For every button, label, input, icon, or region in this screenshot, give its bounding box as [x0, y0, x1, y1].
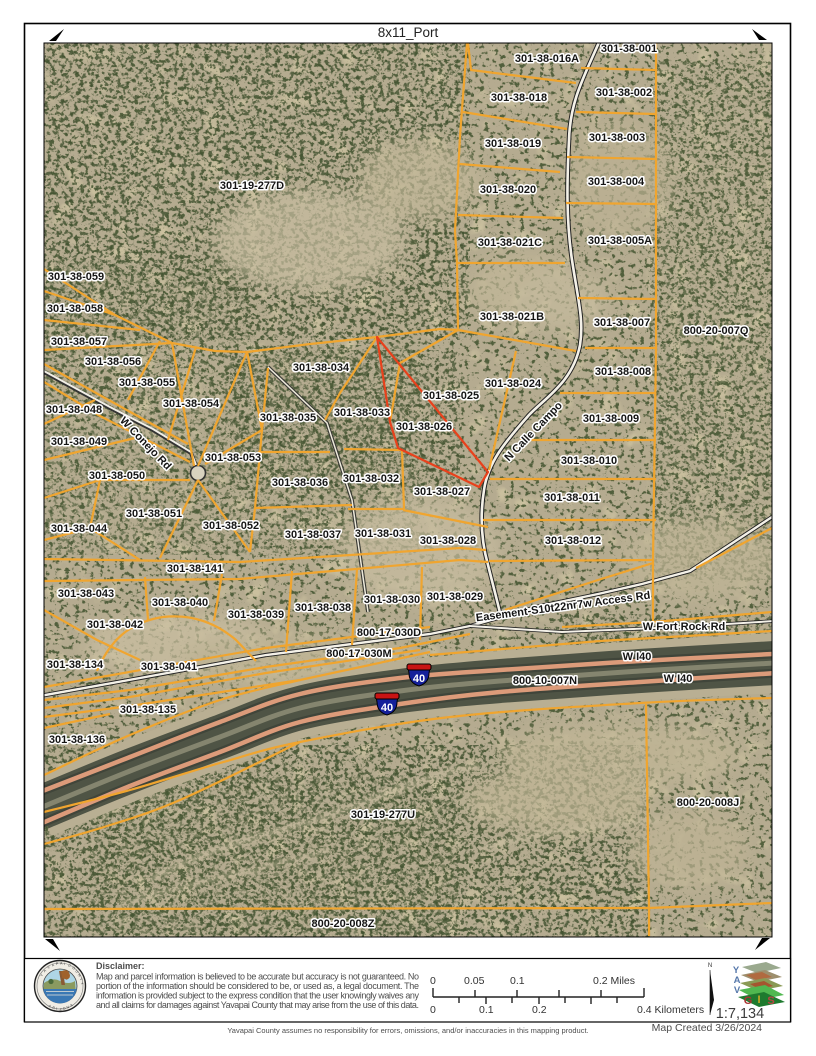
svg-text:301-19-277U: 301-19-277U [351, 809, 415, 821]
svg-text:301-38-007: 301-38-007 [594, 317, 650, 329]
svg-text:0.2: 0.2 [532, 1004, 547, 1016]
svg-text:800-20-008Z: 800-20-008Z [312, 918, 375, 930]
svg-text:0.2 Miles: 0.2 Miles [593, 975, 635, 987]
svg-text:301-38-008: 301-38-008 [595, 366, 651, 378]
svg-text:301-38-052: 301-38-052 [203, 520, 259, 532]
svg-text:W I40: W I40 [623, 651, 652, 663]
svg-text:301-38-032: 301-38-032 [343, 473, 399, 485]
svg-text:N: N [708, 963, 712, 969]
svg-text:V: V [734, 985, 741, 996]
svg-text:301-38-035: 301-38-035 [260, 412, 316, 424]
svg-text:301-38-058: 301-38-058 [47, 303, 103, 315]
svg-text:301-38-041: 301-38-041 [141, 661, 197, 673]
svg-text:information is provided subjec: information is provided subject to the e… [96, 991, 420, 1001]
svg-text:301-38-136: 301-38-136 [49, 734, 105, 746]
svg-text:301-38-049: 301-38-049 [51, 436, 107, 448]
svg-text:8x11_Port: 8x11_Port [378, 25, 439, 40]
svg-text:301-38-055: 301-38-055 [119, 377, 175, 389]
svg-text:Disclaimer:: Disclaimer: [96, 961, 145, 971]
svg-text:301-38-004: 301-38-004 [588, 176, 645, 188]
svg-text:301-38-018: 301-38-018 [491, 92, 547, 104]
svg-text:800-17-030D: 800-17-030D [357, 627, 421, 639]
svg-text:301-38-027: 301-38-027 [414, 486, 470, 498]
svg-text:301-38-056: 301-38-056 [85, 356, 141, 368]
svg-text:301-38-141: 301-38-141 [167, 563, 223, 575]
svg-text:301-38-012: 301-38-012 [545, 535, 601, 547]
svg-text:301-38-030: 301-38-030 [364, 594, 420, 606]
svg-text:Map and parcel information is: Map and parcel information is believed t… [96, 972, 419, 982]
svg-text:800-20-007Q: 800-20-007Q [684, 325, 749, 337]
svg-text:800-10-007N: 800-10-007N [513, 675, 577, 687]
svg-text:Yavapai County assumes no resp: Yavapai County assumes no responsibility… [227, 1026, 588, 1035]
svg-text:301-38-010: 301-38-010 [561, 455, 617, 467]
svg-text:301-38-057: 301-38-057 [51, 336, 107, 348]
svg-text:800-17-030M: 800-17-030M [326, 648, 391, 660]
svg-text:301-38-134: 301-38-134 [47, 659, 104, 671]
svg-text:0: 0 [430, 975, 436, 987]
svg-text:301-38-029: 301-38-029 [427, 591, 483, 603]
svg-text:301-38-005A: 301-38-005A [588, 235, 652, 247]
svg-text:W Fort Rock Rd: W Fort Rock Rd [643, 621, 726, 633]
svg-text:301-38-051: 301-38-051 [126, 508, 182, 520]
svg-text:301-38-009: 301-38-009 [583, 413, 639, 425]
svg-text:0: 0 [430, 1004, 436, 1016]
svg-text:301-38-002: 301-38-002 [596, 87, 652, 99]
svg-text:301-38-059: 301-38-059 [48, 271, 104, 283]
svg-text:301-38-053: 301-38-053 [205, 452, 261, 464]
svg-text:301-38-028: 301-38-028 [420, 535, 476, 547]
svg-text:301-38-011: 301-38-011 [544, 492, 600, 504]
svg-text:301-38-054: 301-38-054 [163, 398, 220, 410]
svg-text:301-38-021B: 301-38-021B [480, 311, 544, 323]
svg-text:301-38-026: 301-38-026 [396, 421, 452, 433]
svg-text:301-38-019: 301-38-019 [485, 138, 541, 150]
svg-text:301-38-016A: 301-38-016A [515, 53, 579, 65]
svg-text:301-38-040: 301-38-040 [152, 597, 208, 609]
svg-text:301-38-042: 301-38-042 [87, 619, 143, 631]
svg-text:301-38-036: 301-38-036 [272, 477, 328, 489]
svg-text:301-38-020: 301-38-020 [480, 184, 536, 196]
svg-text:301-38-043: 301-38-043 [58, 588, 114, 600]
svg-text:301-38-031: 301-38-031 [355, 528, 411, 540]
svg-text:1:7,134: 1:7,134 [716, 1006, 764, 1022]
svg-text:0.1: 0.1 [479, 1004, 494, 1016]
svg-text:301-38-025: 301-38-025 [423, 390, 479, 402]
svg-text:and all claims for damages aga: and all claims for damages against Yavap… [96, 1000, 419, 1010]
svg-text:301-38-135: 301-38-135 [120, 704, 176, 716]
svg-text:301-38-039: 301-38-039 [228, 609, 284, 621]
svg-text:Map Created 3/26/2024: Map Created 3/26/2024 [652, 1022, 762, 1034]
svg-text:0.4 Kilometers: 0.4 Kilometers [637, 1004, 704, 1016]
svg-text:0.1: 0.1 [510, 975, 525, 987]
svg-text:0.05: 0.05 [464, 975, 485, 987]
svg-text:portion of the information sho: portion of the information should be con… [96, 981, 419, 991]
svg-text:301-38-044: 301-38-044 [51, 523, 108, 535]
svg-text:301-38-024: 301-38-024 [485, 378, 542, 390]
svg-text:301-38-001: 301-38-001 [601, 43, 657, 55]
svg-text:301-38-033: 301-38-033 [334, 407, 390, 419]
svg-text:301-38-037: 301-38-037 [285, 529, 341, 541]
svg-text:301-38-021C: 301-38-021C [478, 237, 542, 249]
svg-text:W I40: W I40 [664, 673, 693, 685]
svg-text:301-38-048: 301-38-048 [46, 404, 102, 416]
svg-text:I: I [757, 994, 760, 1006]
svg-text:301-38-034: 301-38-034 [293, 362, 350, 374]
svg-text:40: 40 [413, 673, 425, 685]
svg-text:800-20-008J: 800-20-008J [677, 797, 739, 809]
svg-text:40: 40 [381, 702, 393, 714]
svg-text:301-19-277D: 301-19-277D [220, 180, 284, 192]
svg-text:301-38-003: 301-38-003 [589, 132, 645, 144]
svg-text:S: S [767, 995, 774, 1007]
svg-text:301-38-038: 301-38-038 [295, 602, 351, 614]
svg-text:301-38-050: 301-38-050 [89, 470, 145, 482]
